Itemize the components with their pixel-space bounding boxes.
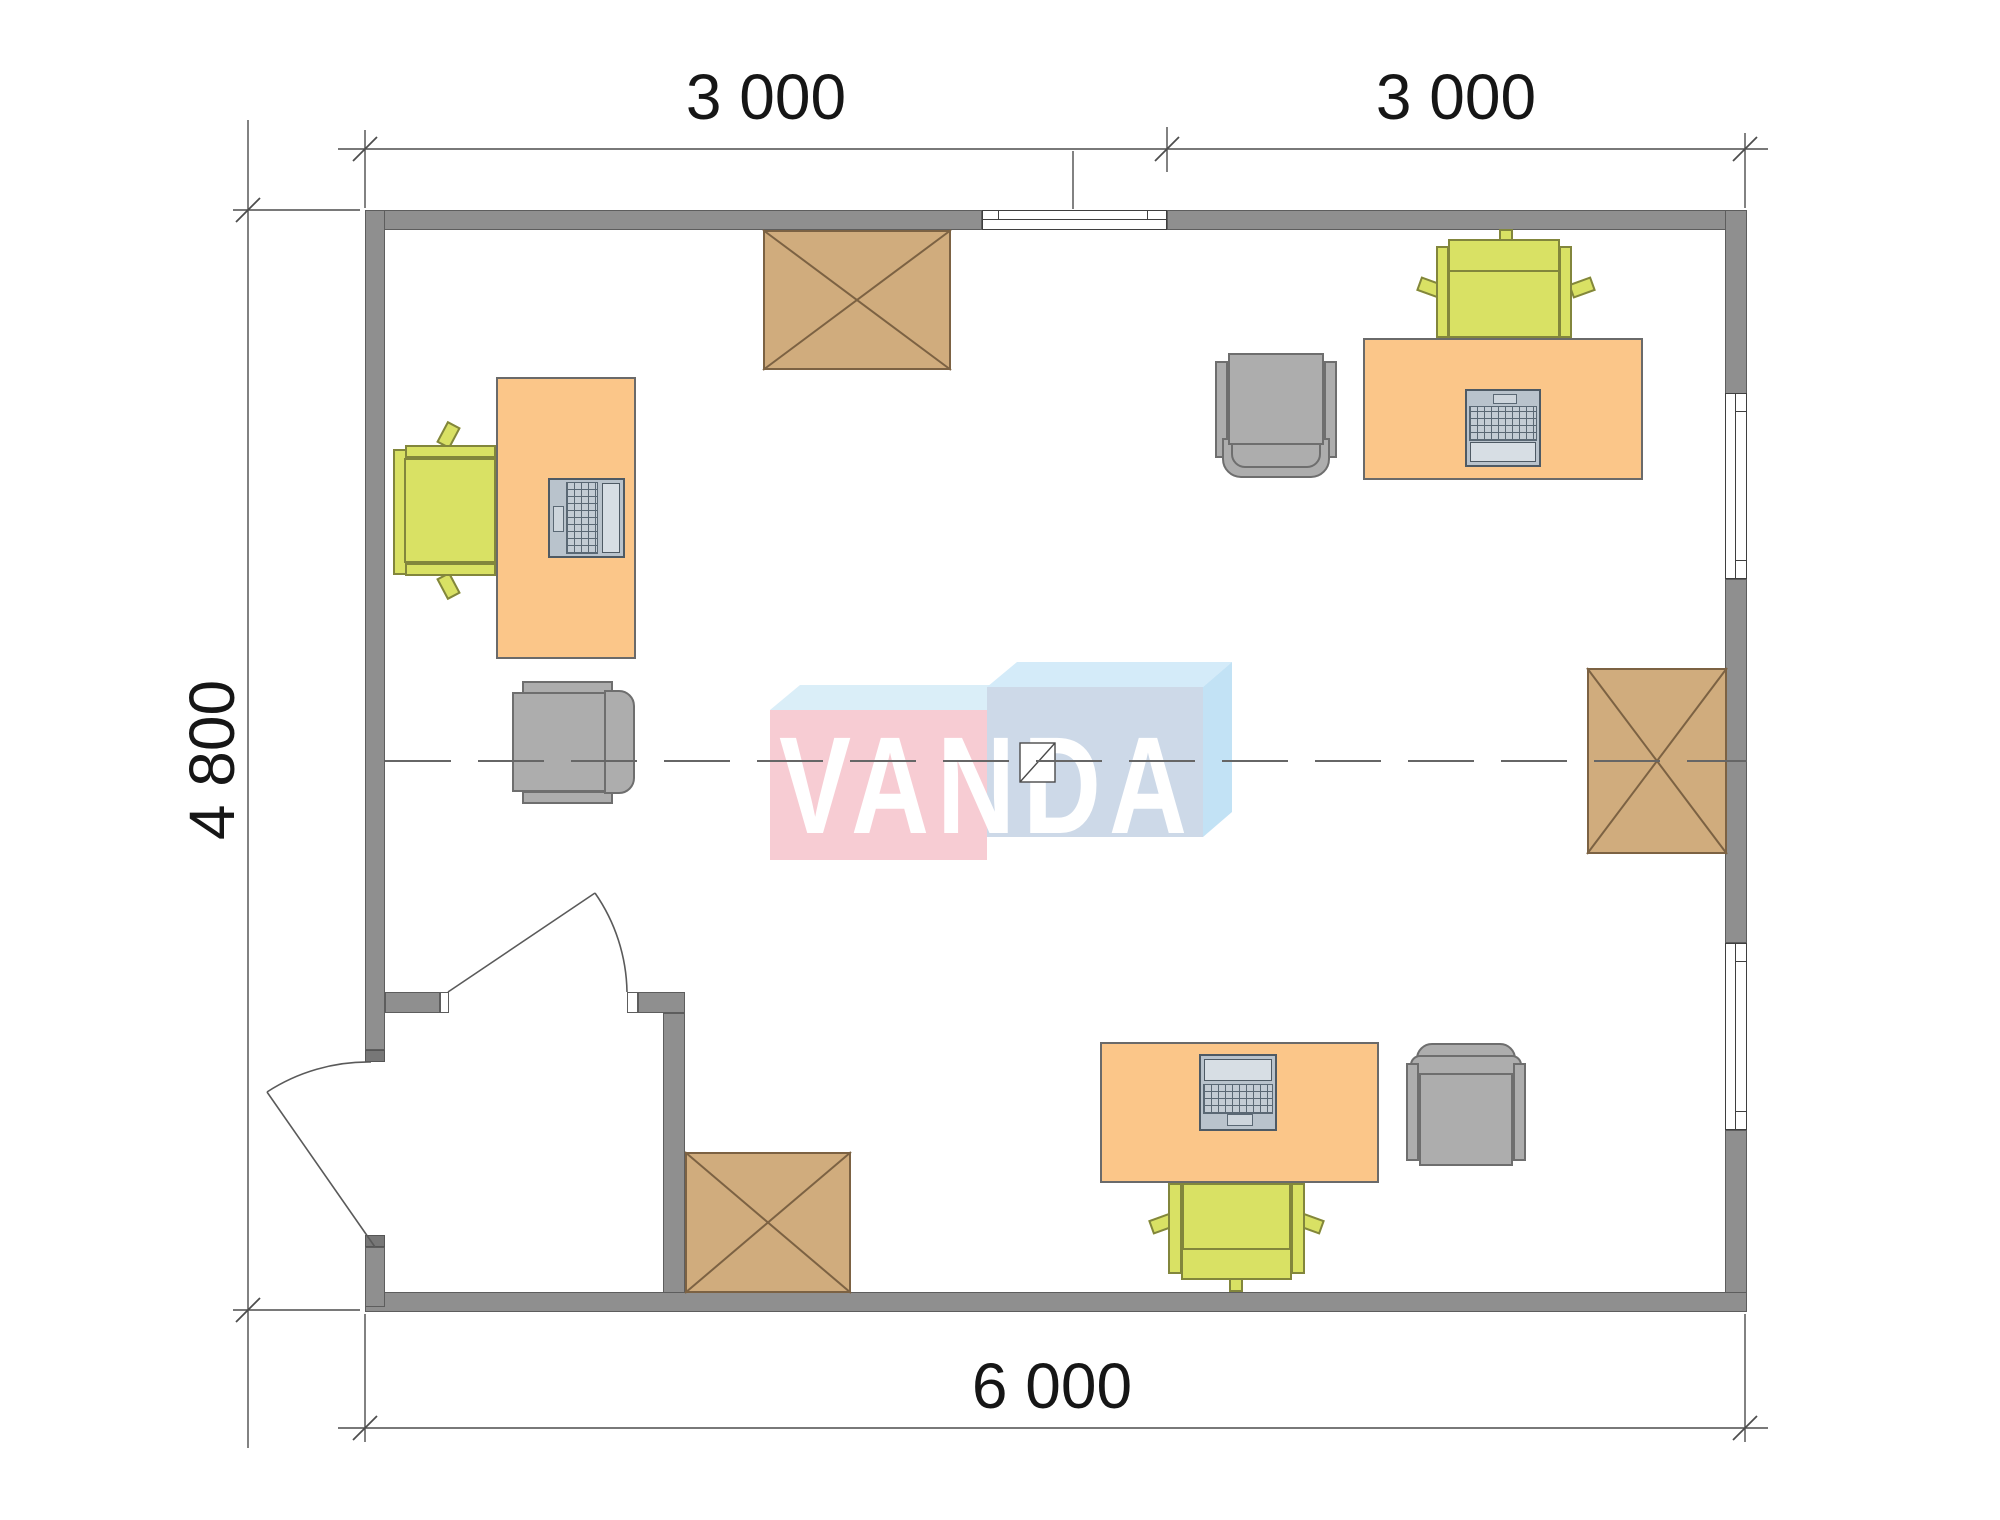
office-chair-armrest — [1291, 1183, 1305, 1274]
interior-door-jamb-right — [627, 992, 638, 1013]
wall-right-lower — [1725, 1130, 1747, 1312]
visitor-armchair-seat — [1228, 353, 1324, 445]
wall-top-right — [1167, 210, 1747, 230]
partition-vertical — [663, 1013, 685, 1293]
dimension-bottom: 6 000 — [932, 1350, 1172, 1422]
dimension-top-right: 3 000 — [1336, 50, 1576, 145]
entrance-door — [267, 1062, 375, 1247]
partition-horizontal-right — [638, 992, 685, 1013]
visitor-chair-seat — [512, 692, 608, 792]
wall-left-lower — [365, 1247, 385, 1307]
visitor-chair-back — [604, 690, 635, 794]
wall-right-middle — [1725, 579, 1747, 943]
office-chair-tab — [1568, 276, 1596, 298]
interior-door-jamb-left — [440, 992, 449, 1013]
storage-box-bottom-left — [685, 1152, 851, 1293]
entrance-door-jamb-top — [365, 1050, 385, 1062]
office-chair-back — [1181, 1248, 1292, 1280]
window-top-wall — [982, 210, 1167, 230]
vanda-logo-text: VANDA — [779, 709, 1195, 863]
office-chair-armrest — [1559, 246, 1572, 338]
wall-bottom — [365, 1292, 1747, 1312]
office-chair-armrest — [405, 563, 496, 576]
center-marker — [1020, 743, 1055, 782]
visitor-armchair-armrest — [1406, 1063, 1419, 1161]
laptop-icon — [548, 478, 625, 558]
partition-horizontal-left — [385, 992, 440, 1013]
office-chair-seat — [1448, 270, 1560, 338]
floor-plan: VANDA — [0, 0, 2000, 1520]
storage-box-top — [763, 230, 951, 370]
office-chair-tab — [436, 572, 461, 600]
visitor-armchair-armrest — [1513, 1063, 1526, 1161]
office-chair-seat — [1182, 1183, 1291, 1250]
laptop-icon — [1199, 1054, 1277, 1131]
wall-left-upper — [365, 210, 385, 1050]
wall-right-upper — [1725, 210, 1747, 394]
laptop-icon — [1465, 389, 1541, 467]
office-chair-seat — [404, 458, 496, 563]
office-chair-armrest — [405, 445, 496, 458]
wall-top-left — [365, 210, 982, 230]
window-right-upper — [1725, 393, 1747, 579]
office-chair-back — [1448, 239, 1560, 272]
dimension-side: 4 800 — [176, 640, 248, 880]
dimension-top-left: 3 000 — [646, 50, 886, 145]
vanda-logo: VANDA — [770, 662, 1232, 863]
visitor-chair-armrest — [522, 791, 613, 804]
visitor-armchair-seat — [1419, 1073, 1513, 1166]
office-chair-armrest — [1168, 1183, 1182, 1274]
entrance-door-jamb-bottom — [365, 1235, 385, 1247]
storage-box-right — [1587, 668, 1727, 854]
interior-door — [448, 893, 627, 992]
window-right-lower — [1725, 943, 1747, 1130]
